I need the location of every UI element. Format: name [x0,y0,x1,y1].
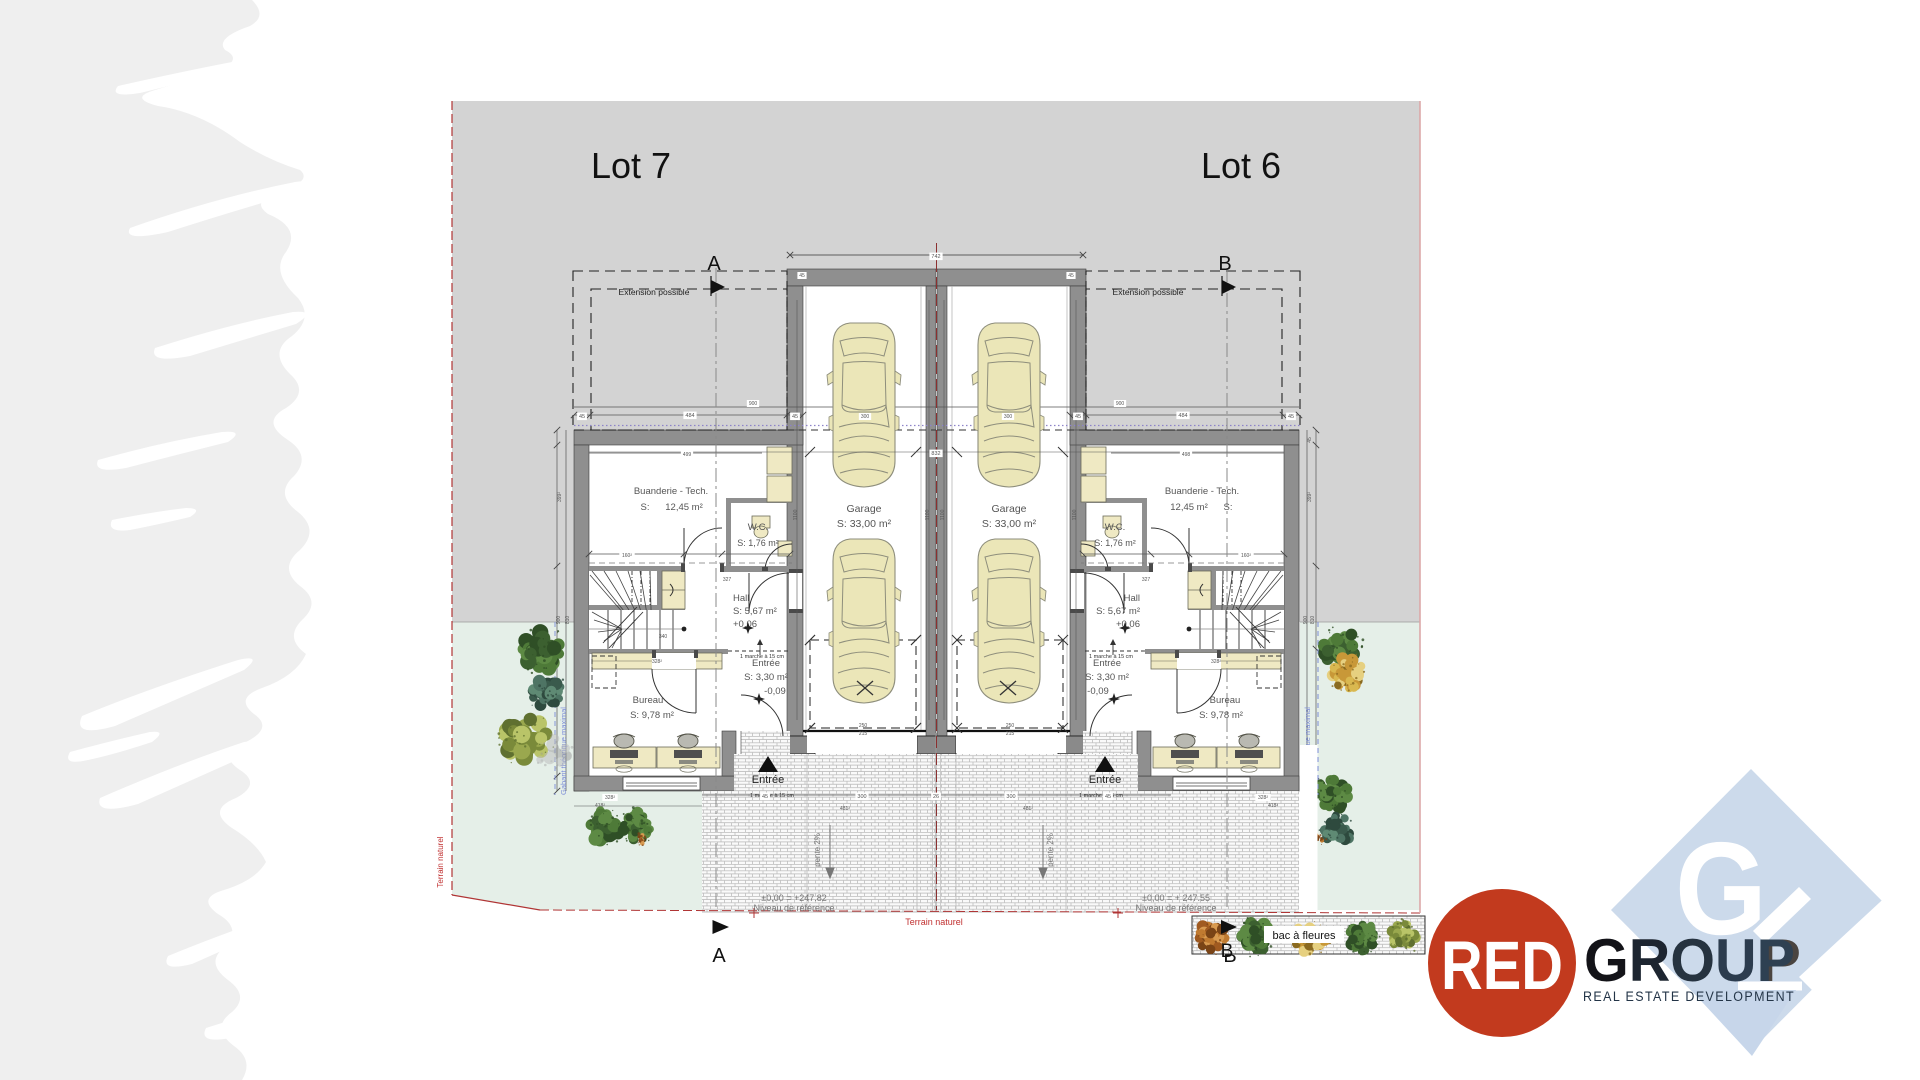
svg-text:499: 499 [683,452,692,458]
svg-text:B: B [1218,253,1231,275]
svg-text:±0,00 = +247.82: ±0,00 = +247.82 [761,893,827,903]
svg-text:45: 45 [762,794,768,800]
svg-text:1 marche à 15 cm: 1 marche à 15 cm [740,654,784,660]
svg-text:Entrée: Entrée [752,774,784,786]
svg-text:45: 45 [1068,273,1074,279]
svg-text:300: 300 [1004,414,1013,420]
svg-text:1100: 1100 [940,509,946,520]
svg-text:pente 2%: pente 2% [1046,833,1055,867]
svg-text:832: 832 [931,451,940,457]
svg-text:328²: 328² [652,659,662,665]
svg-text:GROUP: GROUP [1584,927,1795,994]
svg-text:327: 327 [1142,577,1151,583]
svg-text:45: 45 [799,273,805,279]
svg-text:45: 45 [579,414,585,420]
svg-text:328²: 328² [605,795,615,801]
svg-text:300: 300 [857,794,866,800]
svg-text:Garage: Garage [991,503,1026,515]
svg-text:bac à fleures: bac à fleures [1273,930,1336,942]
svg-text:12,45 m²: 12,45 m² [665,502,703,513]
svg-text:Extension possible: Extension possible [1113,287,1184,297]
svg-text:Terrain naturel: Terrain naturel [905,917,963,927]
svg-text:Garage: Garage [846,503,881,515]
svg-text:900: 900 [556,616,562,625]
svg-text:-0,09: -0,09 [764,686,786,697]
svg-text:484: 484 [685,413,694,419]
svg-text:160²: 160² [622,553,632,559]
svg-text:328²: 328² [1258,795,1268,801]
svg-text:1 marche à 15 cm: 1 marche à 15 cm [750,793,794,799]
svg-text:1100: 1100 [925,509,931,520]
svg-text:pente 2%: pente 2% [813,833,822,867]
svg-text:160²: 160² [1241,553,1251,559]
svg-text:S: 3,30 m²: S: 3,30 m² [1085,672,1129,683]
svg-text:S: 9,78 m²: S: 9,78 m² [630,710,674,721]
svg-text:1 marche à 15 cm: 1 marche à 15 cm [1079,793,1123,799]
svg-text:A: A [712,945,726,967]
svg-text:399²: 399² [557,492,563,502]
svg-text:-0,09: -0,09 [1087,686,1109,697]
svg-text:810: 810 [565,616,571,625]
svg-text:26: 26 [933,794,939,800]
svg-text:215: 215 [859,731,868,737]
svg-text:Bureau: Bureau [633,695,664,706]
svg-text:A: A [707,253,721,275]
svg-text:Niveau de référence: Niveau de référence [753,903,834,913]
svg-text:1100: 1100 [793,509,799,520]
svg-text:Buanderie - Tech.: Buanderie - Tech. [634,486,708,497]
svg-text:B: B [1221,941,1234,962]
svg-text:Lot 7: Lot 7 [591,145,671,186]
svg-text:Lot 6: Lot 6 [1201,145,1281,186]
svg-text:REAL ESTATE DEVELOPMENT: REAL ESTATE DEVELOPMENT [1583,989,1795,1004]
svg-text:45: 45 [1307,437,1313,443]
svg-text:1 marche à 15 cm: 1 marche à 15 cm [1089,654,1133,660]
svg-text:S: 5,67 m²: S: 5,67 m² [733,606,777,617]
svg-text:498: 498 [1182,452,1191,458]
svg-text:RED: RED [1441,927,1563,1004]
svg-text:900: 900 [1303,616,1309,625]
svg-text:Entrée: Entrée [1089,774,1121,786]
svg-text:S: 33,00 m²: S: 33,00 m² [982,518,1037,530]
svg-text:742: 742 [931,254,940,260]
svg-text:S:: S: [641,502,650,513]
svg-text:12,45 m²: 12,45 m² [1170,502,1208,513]
svg-text:Extension possible: Extension possible [619,287,690,297]
svg-text:327: 327 [723,577,732,583]
svg-text:S: 1,76 m²: S: 1,76 m² [1094,538,1136,548]
svg-text:45: 45 [1288,414,1294,420]
svg-text:340: 340 [659,634,668,640]
svg-text:215: 215 [1006,731,1015,737]
svg-text:900: 900 [749,401,758,407]
svg-text:481²: 481² [840,806,850,812]
svg-text:S: 3,30 m²: S: 3,30 m² [744,672,788,683]
svg-text:1100: 1100 [1072,509,1078,520]
svg-text:S: 9,78 m²: S: 9,78 m² [1199,710,1243,721]
svg-text:250: 250 [859,723,868,729]
svg-text:300: 300 [861,414,870,420]
svg-text:Hall: Hall [1124,593,1140,604]
svg-text:250: 250 [1006,723,1015,729]
svg-text:W.C.: W.C. [1105,522,1126,533]
svg-text:W.C.: W.C. [748,522,769,533]
svg-text:Hall: Hall [733,593,749,604]
svg-text:300: 300 [1006,794,1015,800]
svg-text:S: 1,76 m²: S: 1,76 m² [737,538,779,548]
svg-text:481²: 481² [1023,806,1033,812]
svg-text:S:: S: [1224,502,1233,513]
svg-text:±0,00 = + 247.55: ±0,00 = + 247.55 [1142,893,1210,903]
svg-text:Buanderie - Tech.: Buanderie - Tech. [1165,486,1239,497]
svg-text:810: 810 [1310,616,1316,625]
svg-text:45: 45 [792,414,798,420]
svg-text:484: 484 [1178,413,1187,419]
svg-text:Niveau de référence: Niveau de référence [1135,903,1216,913]
svg-text:45: 45 [1105,794,1111,800]
svg-text:900: 900 [1116,401,1125,407]
svg-text:328²: 328² [1211,659,1221,665]
svg-text:45: 45 [1075,414,1081,420]
svg-text:399²: 399² [1307,492,1313,502]
svg-text:S: 5,67 m²: S: 5,67 m² [1096,606,1140,617]
svg-text:S: 33,00 m²: S: 33,00 m² [837,518,892,530]
svg-text:418²: 418² [1268,803,1278,809]
svg-text:Terrain naturel: Terrain naturel [436,836,445,887]
svg-text:Bureau: Bureau [1210,695,1241,706]
